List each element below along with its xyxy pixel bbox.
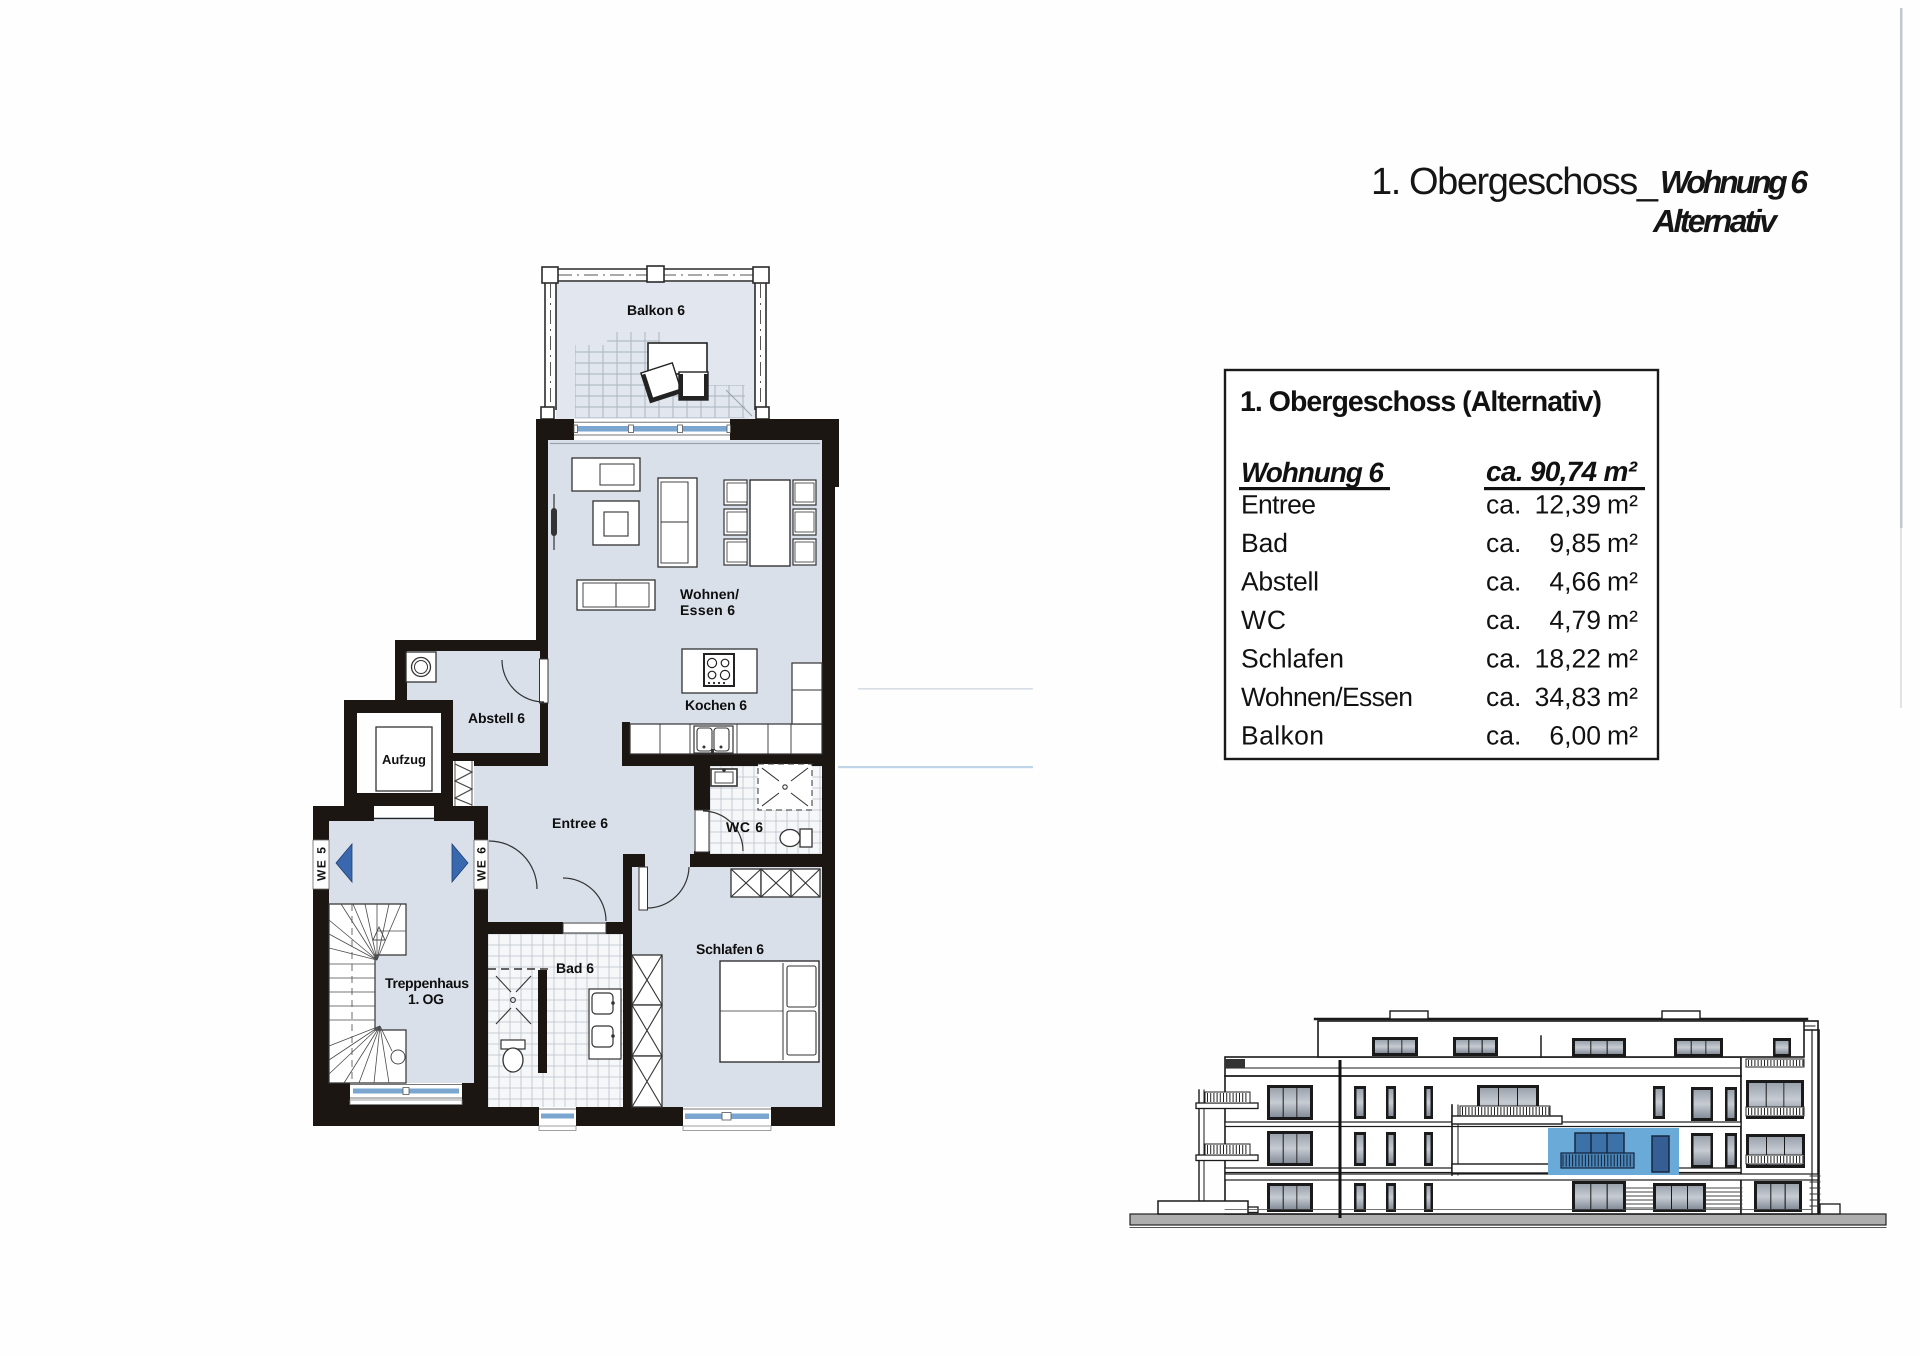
svg-text:WE 6: WE 6 <box>475 847 489 881</box>
svg-text:ca.: ca. <box>1486 567 1521 597</box>
svg-text:m²: m² <box>1607 528 1638 558</box>
svg-text:ca.: ca. <box>1486 605 1521 635</box>
svg-text:Aufzug: Aufzug <box>382 752 426 767</box>
svg-text:Wohnung 6: Wohnung 6 <box>1241 457 1384 488</box>
svg-text:12,39: 12,39 <box>1535 490 1601 520</box>
svg-text:1. Obergeschoss (Alternativ): 1. Obergeschoss (Alternativ) <box>1240 386 1602 418</box>
svg-text:Abstell: Abstell <box>1241 567 1319 597</box>
svg-text:ca.: ca. <box>1486 490 1521 520</box>
svg-text:WE 5: WE 5 <box>315 847 329 881</box>
svg-text:Balkon 6: Balkon 6 <box>627 302 685 318</box>
svg-text:ca. 90,74 m²: ca. 90,74 m² <box>1486 456 1638 487</box>
svg-text:Entree: Entree <box>1241 490 1316 520</box>
svg-text:Bad 6: Bad 6 <box>556 960 594 976</box>
svg-text:ca.: ca. <box>1486 644 1521 674</box>
svg-text:Essen 6: Essen 6 <box>680 602 735 618</box>
svg-text:m²: m² <box>1607 682 1638 712</box>
svg-text:Wohnen/Essen: Wohnen/Essen <box>1241 682 1413 712</box>
svg-text:Bad: Bad <box>1241 528 1288 558</box>
svg-text:18,22: 18,22 <box>1535 644 1601 674</box>
svg-text:4,79: 4,79 <box>1549 605 1601 635</box>
svg-text:Entree 6: Entree 6 <box>552 815 608 831</box>
svg-text:ca.: ca. <box>1486 721 1521 751</box>
svg-text:ca.: ca. <box>1486 682 1521 712</box>
svg-text:Wohnen/: Wohnen/ <box>680 586 739 602</box>
svg-text:Alternativ: Alternativ <box>1652 203 1779 239</box>
svg-text:Wohnung 6: Wohnung 6 <box>1660 164 1808 200</box>
svg-text:1. Obergeschoss_: 1. Obergeschoss_ <box>1371 161 1659 203</box>
svg-text:WC: WC <box>1241 605 1286 635</box>
svg-text:Treppenhaus: Treppenhaus <box>385 975 469 991</box>
svg-text:4,66: 4,66 <box>1549 567 1601 597</box>
svg-text:Kochen 6: Kochen 6 <box>685 697 747 713</box>
svg-text:1. OG: 1. OG <box>408 991 444 1007</box>
svg-text:Balkon: Balkon <box>1241 721 1324 751</box>
svg-text:m²: m² <box>1607 490 1638 520</box>
svg-text:m²: m² <box>1607 644 1638 674</box>
svg-text:Schlafen: Schlafen <box>1241 644 1344 674</box>
svg-text:ca.: ca. <box>1486 528 1521 558</box>
svg-text:Abstell 6: Abstell 6 <box>468 710 525 726</box>
svg-text:m²: m² <box>1607 567 1638 597</box>
svg-text:Schlafen 6: Schlafen 6 <box>696 941 764 957</box>
svg-text:WC 6: WC 6 <box>726 819 763 835</box>
svg-text:9,85: 9,85 <box>1549 528 1601 558</box>
svg-text:m²: m² <box>1607 721 1638 751</box>
svg-text:m²: m² <box>1607 605 1638 635</box>
svg-text:6,00: 6,00 <box>1549 721 1601 751</box>
svg-text:34,83: 34,83 <box>1535 682 1601 712</box>
